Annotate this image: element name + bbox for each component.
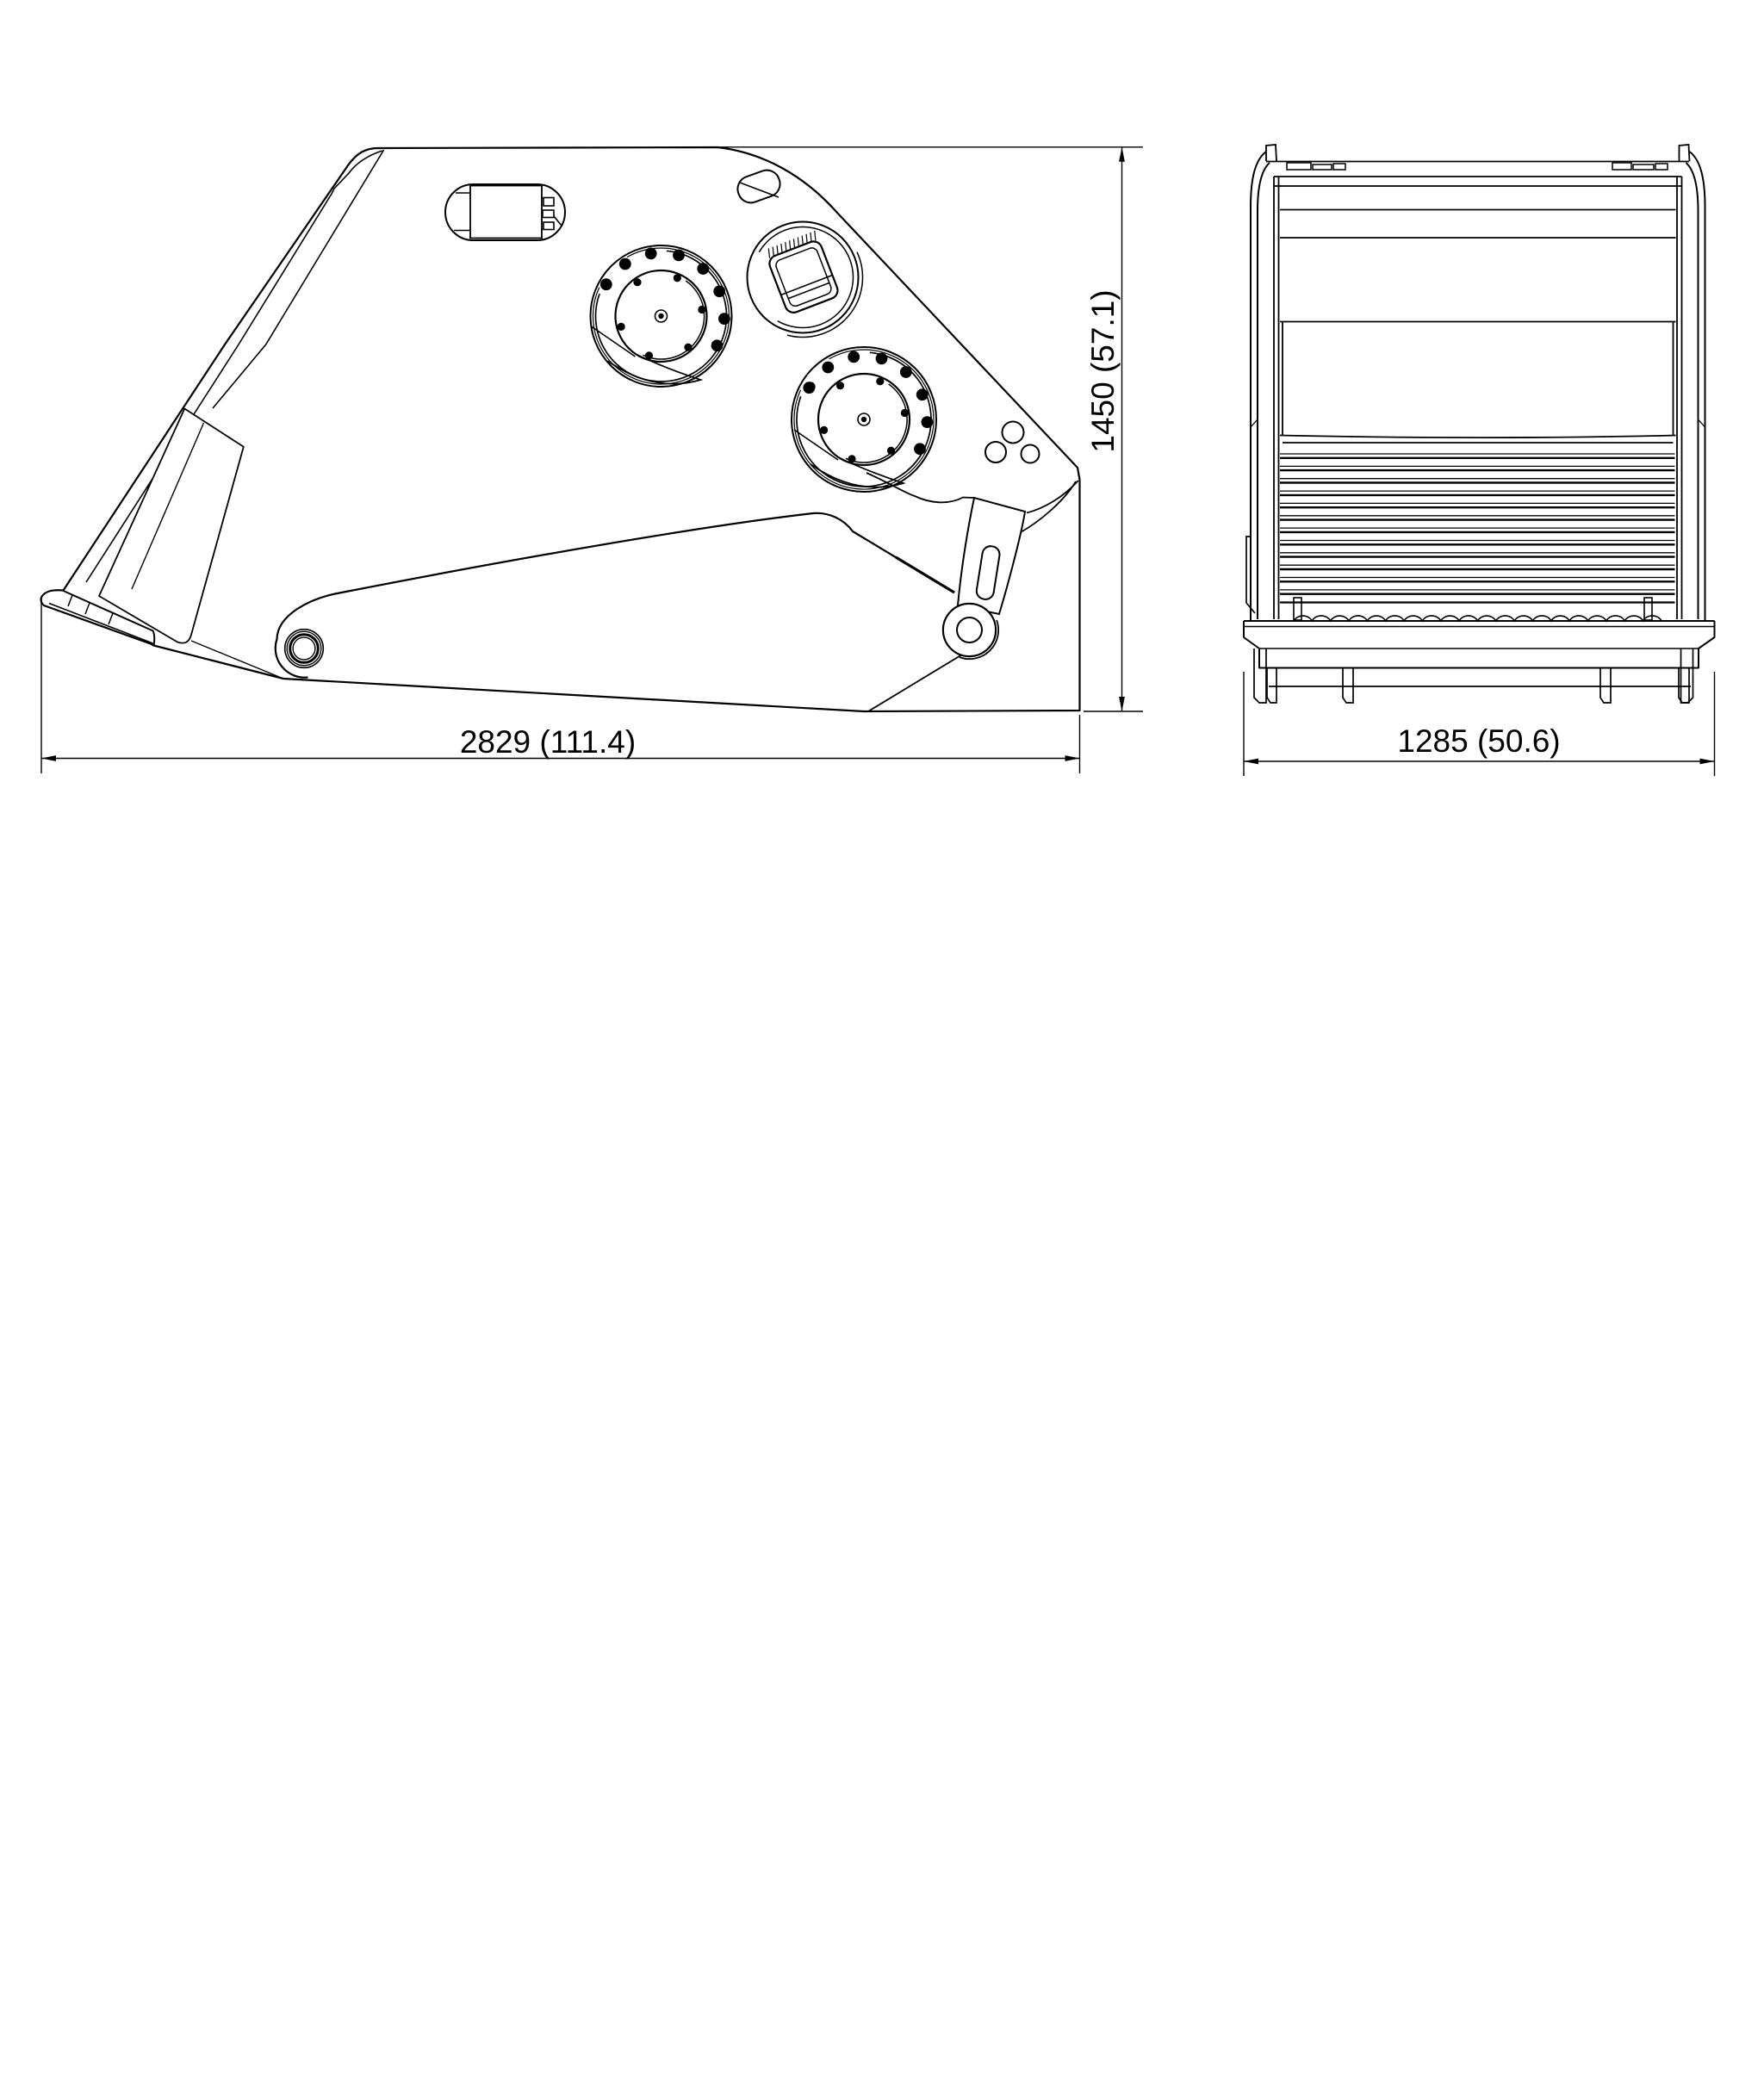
svg-text:1450 (57.1): 1450 (57.1) bbox=[1085, 289, 1121, 452]
svg-text:2829 (111.4): 2829 (111.4) bbox=[460, 724, 636, 760]
svg-text:1285 (50.6): 1285 (50.6) bbox=[1397, 723, 1560, 759]
